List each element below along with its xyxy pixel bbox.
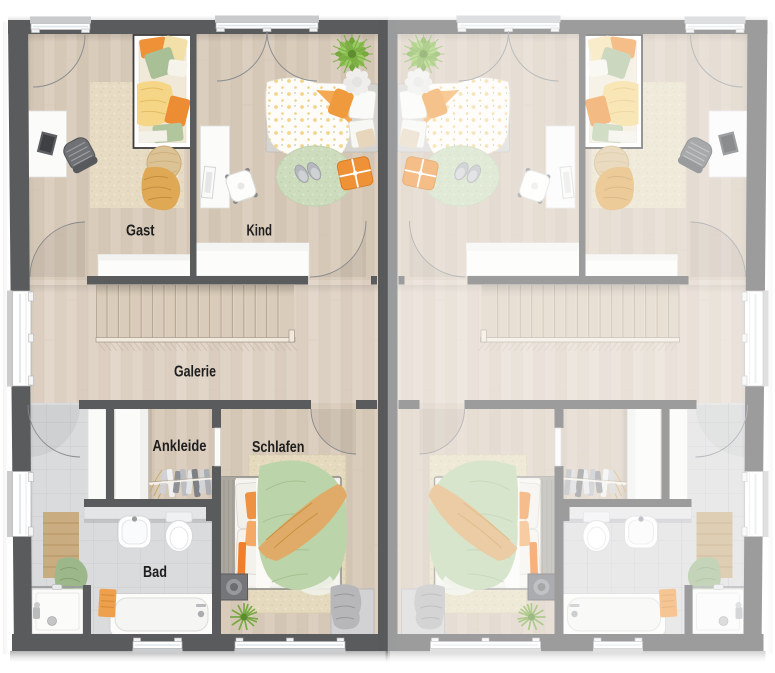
svg-text:Kind: Kind — [247, 223, 273, 240]
svg-text:Bad: Bad — [143, 564, 167, 581]
svg-text:Galerie: Galerie — [174, 364, 216, 381]
svg-text:Gast: Gast — [126, 223, 155, 240]
svg-text:Schlafen: Schlafen — [252, 439, 305, 456]
svg-text:Ankleide: Ankleide — [153, 438, 207, 455]
